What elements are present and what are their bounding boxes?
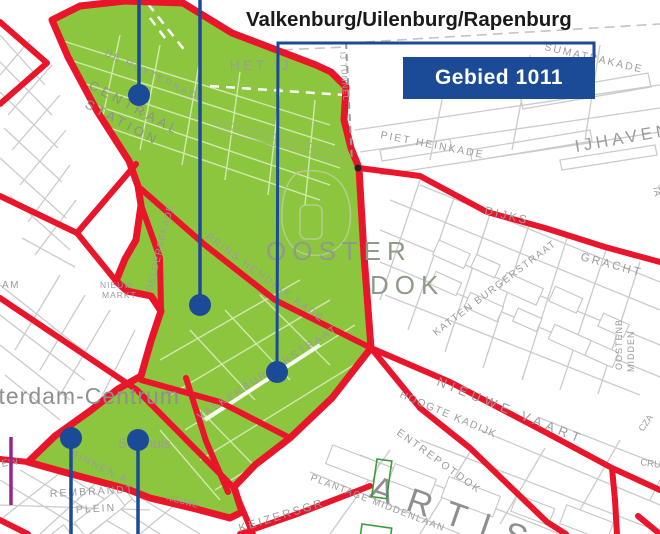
marker-dot-nieuwmarkt [189,294,211,316]
label-dok: DOK [370,270,444,300]
label-ta: TA [651,185,660,197]
label-amsterdam-centrum: sterdam-Centrum [0,383,180,409]
label-nieuwmarkt-line2: MARKT [102,290,137,300]
map-figure: HET IJ IJ TUNNEL SUMATRAKADE TA IJHAVEN … [0,0,660,534]
label-nieuwmarkt-line1: NIEUW [100,280,133,290]
marker-dot-valkenburg [266,361,288,383]
label-oostenb: OOSTENB [614,319,624,370]
boundary-junction-dot [355,165,362,172]
label-am-partial: AM [2,280,20,291]
marker-dot-stadhuis [127,429,149,451]
label-cza: CZA [636,413,655,433]
label-ooster: OOSTER [266,236,412,266]
label-keizersgracht: KEIZERSGR [237,497,326,534]
marker-dot-amstel [60,427,82,449]
label-het-ij: HET IJ [230,58,292,73]
label-dijks: DIJKS [483,205,530,227]
marker-dot-centraal [128,84,150,106]
label-midden: MIDDEN [626,331,636,373]
label-rembrandt: REMBRANDT [50,484,135,500]
map-title: Valkenburg/Uilenburg/Rapenburg [246,8,646,32]
area-badge: Gebied 1011 [403,57,595,99]
label-cru: CRU [640,457,660,471]
label-plein: PLEIN [76,502,117,516]
label-piet-heinkade: PIET HEINKADE [379,129,485,161]
